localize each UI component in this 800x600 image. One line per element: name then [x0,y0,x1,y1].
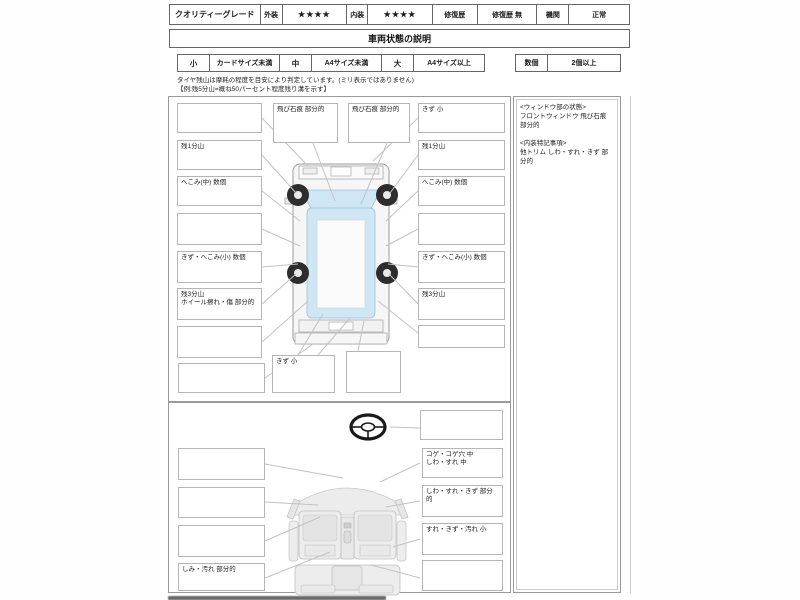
exterior-label-box-left-7 [177,326,262,358]
exterior-label-box-right-6: 残3分山 [418,288,505,320]
front-plate [331,167,351,176]
page-title: 車両状態の説明 [169,29,630,48]
interior-remarks-heading: <内装特記事項> [520,139,614,148]
size-small-key: 小 [178,55,210,71]
exterior-label-box-left-4 [177,213,262,245]
repair-history-value: 修復歴 無 [478,5,538,24]
document-page: クオリティーグレード 外装 ★★★★ 内装 ★★★★ 修復歴 修復歴 無 機関 … [160,0,640,600]
exterior-star-rating: ★★★★ [283,5,348,24]
interior-label-box-left-3 [178,525,265,557]
exterior-label: 外装 [261,5,283,24]
tire-note-line1: タイヤ残山は摩耗の程度を目安により判定しています。(ミリ表示ではありません) [177,77,507,86]
interior-label-box-left-1 [178,448,265,480]
size-small-desc: カードサイズ未満 [210,55,280,71]
engine-label: 機関 [537,5,569,24]
exterior-label-box-right-4 [418,213,505,245]
exterior-label-box-right-1: きず 小 [418,103,505,133]
count-desc: 2個以上 [548,55,620,71]
roof-panel [317,220,365,308]
size-large-desc: A4サイズ以上 [414,55,484,71]
exterior-label-box-left-3: へこみ(中) 数個 [177,176,262,206]
repair-history-label: 修復歴 [433,5,478,24]
headlight-left [303,168,317,174]
tire-note-line2: 【例:残5分山=概ね50パーセント程度残り溝を示す】 [177,86,507,95]
engine-value: 正常 [569,5,629,24]
exterior-label-box-right-7 [418,325,505,348]
exterior-label-box-left-5: きず・へこみ(小) 数個 [177,251,262,283]
exterior-label-box-bottom-3 [346,351,401,393]
size-medium-key: 中 [280,55,312,71]
interior-label-box-right-4 [422,560,503,591]
rear-plate [329,322,353,330]
exterior-label-box-top-1: 飛び石痕 部分的 [273,103,338,143]
window-state-heading: <ウィンドウ部の状態> [520,103,614,112]
car-top-view-diagram [277,148,405,348]
interior-label-box-left-4: しみ・汚れ 部分的 [178,563,265,591]
rear-bumper [295,333,387,344]
exterior-label-box-bottom-1 [178,363,265,393]
exterior-label-box-right-3: へこみ(中) 数個 [418,176,505,206]
count-key: 数個 [516,55,548,71]
grade-header-table: クオリティーグレード 外装 ★★★★ 内装 ★★★★ 修復歴 修復歴 無 機関 … [169,4,630,25]
exterior-label-box-left-1 [177,103,262,133]
exterior-label-box-right-2: 残1分山 [418,140,505,170]
interior-label-box-right-3: すれ・きず・汚れ 小 [422,523,503,555]
cutoff-text-strip [168,596,386,600]
remarks-panel: <ウィンドウ部の状態> フロントウィンドウ 飛び石痕 部分的 <内装特記事項> … [513,96,621,593]
interior-label-box-left-2 [178,487,265,518]
exterior-label-box-right-5: きず・へこみ(小) 数個 [418,251,505,283]
interior-label-box-steering [420,410,503,440]
tire-note: タイヤ残山は摩耗の程度を目安により判定しています。(ミリ表示ではありません) 【… [177,77,507,94]
exterior-label-box-left-6: 残3分山ホイール擦れ・傷 部分的 [177,288,262,320]
page-edge-line [630,96,631,593]
exterior-label-box-bottom-2: きず 小 [272,355,335,393]
exterior-label-box-left-2: 残1分山 [177,140,262,170]
headlight-right [365,168,379,174]
interior-remarks-item: 他トリム しわ・すれ・きず 部分的 [520,148,614,166]
steering-wheel-icon [348,412,388,442]
size-large-key: 大 [382,55,414,71]
interior-label-box-right-2: しわ・すれ・きず 部分的 [422,485,503,517]
car-interior-diagram [285,465,410,597]
interior-star-rating: ★★★★ [368,5,433,24]
quality-grade-label: クオリティーグレード [170,5,261,24]
vehicle-condition-sheet: クオリティーグレード 外装 ★★★★ 内装 ★★★★ 修復歴 修復歴 無 機関 … [0,0,800,600]
window-state-item: フロントウィンドウ 飛び石痕 部分的 [520,112,614,130]
size-legend-table: 小 カードサイズ未満 中 A4サイズ未満 大 A4サイズ以上 [177,54,485,72]
interior-label: 内装 [347,5,368,24]
remarks-panel-inner: <ウィンドウ部の状態> フロントウィンドウ 飛び石痕 部分的 <内装特記事項> … [516,99,618,590]
size-medium-desc: A4サイズ未満 [312,55,382,71]
interior-label-box-right-1: コゲ・コゲ穴 中しわ・すれ 中 [422,448,503,478]
exterior-label-box-top-2: 飛び石痕 部分的 [348,103,410,143]
count-legend-table: 数個 2個以上 [515,54,621,72]
